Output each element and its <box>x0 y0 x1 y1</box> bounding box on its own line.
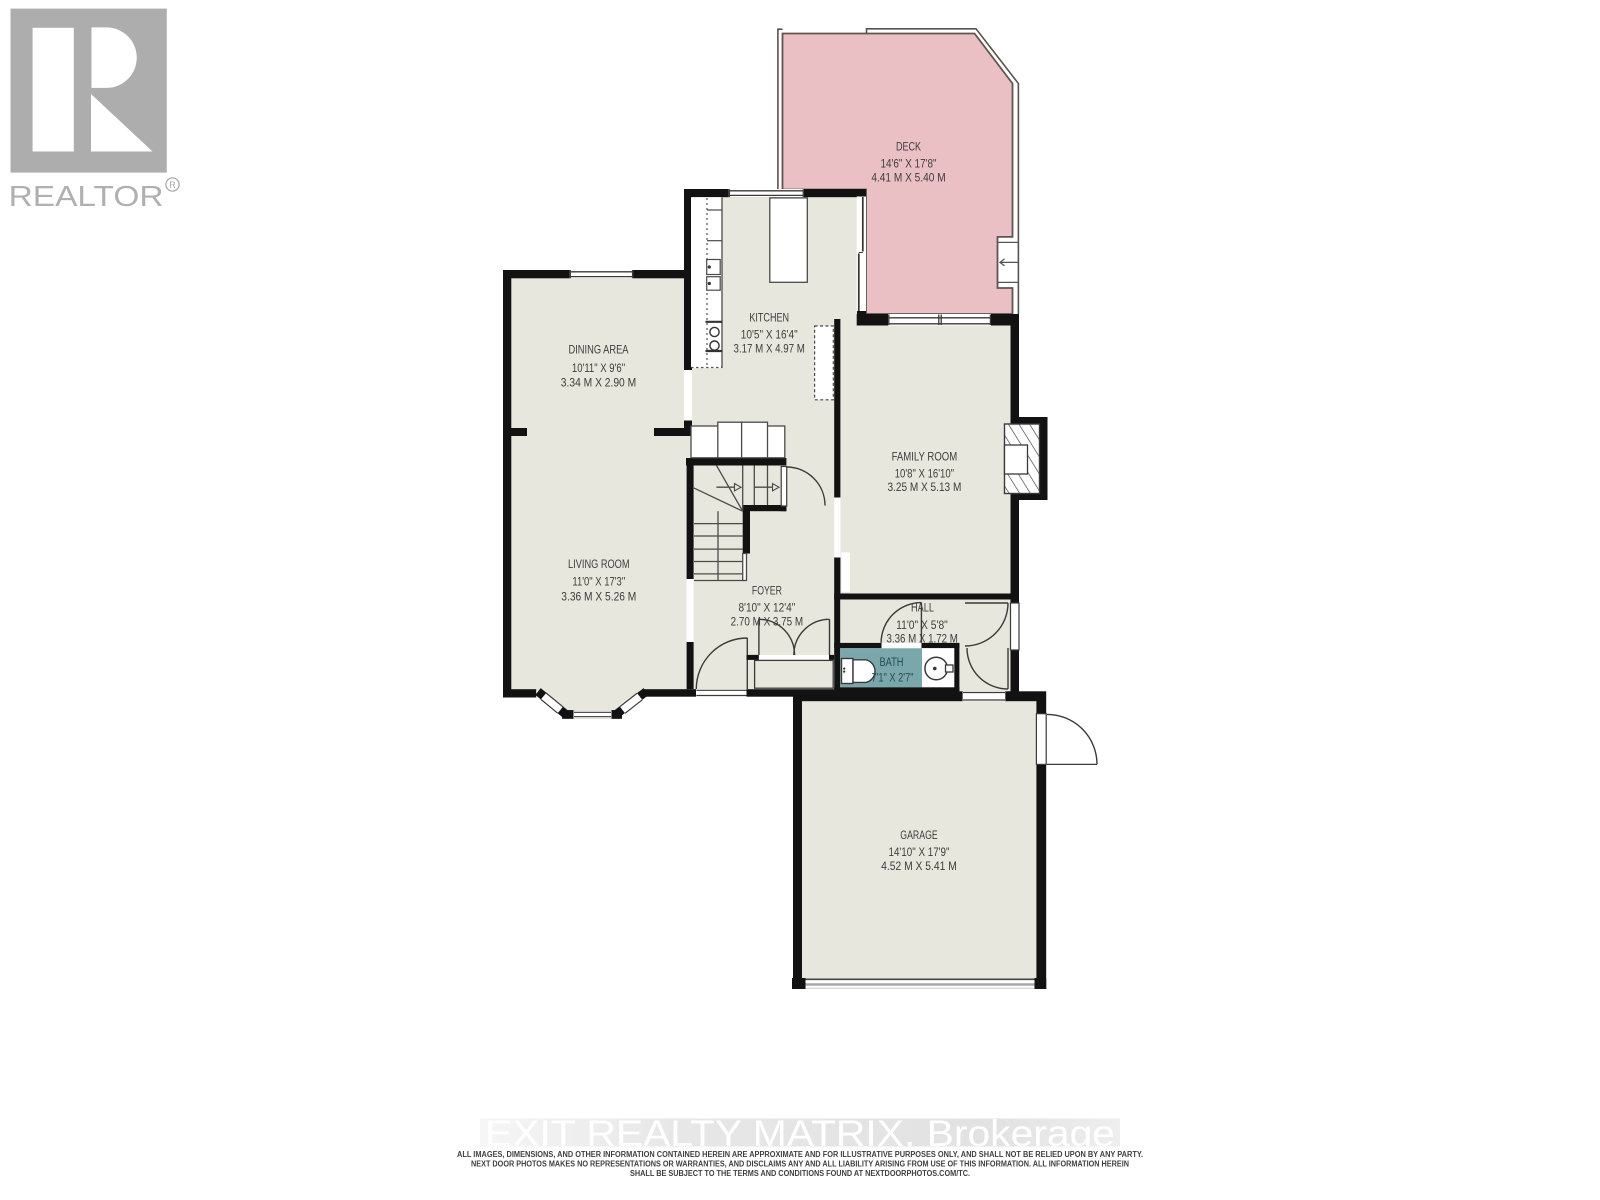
svg-text:HALL: HALL <box>911 601 934 615</box>
svg-text:ALL IMAGES, DIMENSIONS, AND OT: ALL IMAGES, DIMENSIONS, AND OTHER INFORM… <box>457 1149 1143 1159</box>
svg-text:4.52 M X 5.41 M: 4.52 M X 5.41 M <box>881 859 957 873</box>
svg-text:3.34 M X 2.90 M: 3.34 M X 2.90 M <box>561 375 636 389</box>
svg-text:14'6" X 17'8": 14'6" X 17'8" <box>881 157 937 171</box>
svg-text:2.70 M X 3.75 M: 2.70 M X 3.75 M <box>731 614 804 628</box>
svg-text:NEXT DOOR PHOTOS MAKES NO REPR: NEXT DOOR PHOTOS MAKES NO REPRESENTATION… <box>471 1158 1129 1168</box>
svg-text:14'10" X 17'9": 14'10" X 17'9" <box>889 845 950 859</box>
svg-text:REALTOR: REALTOR <box>9 181 164 213</box>
svg-text:11'0" X 5'8": 11'0" X 5'8" <box>896 618 948 632</box>
svg-text:DINING AREA: DINING AREA <box>569 342 630 356</box>
svg-text:11'0" X 17'3": 11'0" X 17'3" <box>572 575 625 589</box>
svg-text:SHALL BE SUBJECT TO THE TERMS: SHALL BE SUBJECT TO THE TERMS AND CONDIT… <box>630 1168 970 1178</box>
svg-text:3.25 M X 5.13 M: 3.25 M X 5.13 M <box>887 480 961 494</box>
svg-text:3.36 M X 1.72 M: 3.36 M X 1.72 M <box>887 632 958 646</box>
svg-text:10'5" X 16'4": 10'5" X 16'4" <box>741 328 798 342</box>
svg-text:KITCHEN: KITCHEN <box>749 311 789 325</box>
svg-text:FAMILY ROOM: FAMILY ROOM <box>892 449 958 463</box>
svg-text:DECK: DECK <box>896 139 922 153</box>
svg-text:10'11" X 9'6": 10'11" X 9'6" <box>572 361 625 375</box>
svg-text:10'8" X 16'10": 10'8" X 16'10" <box>895 467 954 481</box>
svg-text:8'10" X 12'4": 8'10" X 12'4" <box>738 600 795 614</box>
svg-text:R: R <box>169 180 176 190</box>
svg-text:FOYER: FOYER <box>752 584 782 598</box>
svg-text:LIVING ROOM: LIVING ROOM <box>568 557 630 571</box>
svg-text:4.41 M X 5.40 M: 4.41 M X 5.40 M <box>871 170 945 184</box>
svg-text:3.17 M X 4.97 M: 3.17 M X 4.97 M <box>734 342 805 356</box>
svg-text:3.36 M X 5.26 M: 3.36 M X 5.26 M <box>561 589 636 603</box>
svg-text:BATH: BATH <box>880 655 904 669</box>
svg-text:GARAGE: GARAGE <box>900 828 937 842</box>
svg-text:7'1" X 2'7": 7'1" X 2'7" <box>872 671 914 685</box>
